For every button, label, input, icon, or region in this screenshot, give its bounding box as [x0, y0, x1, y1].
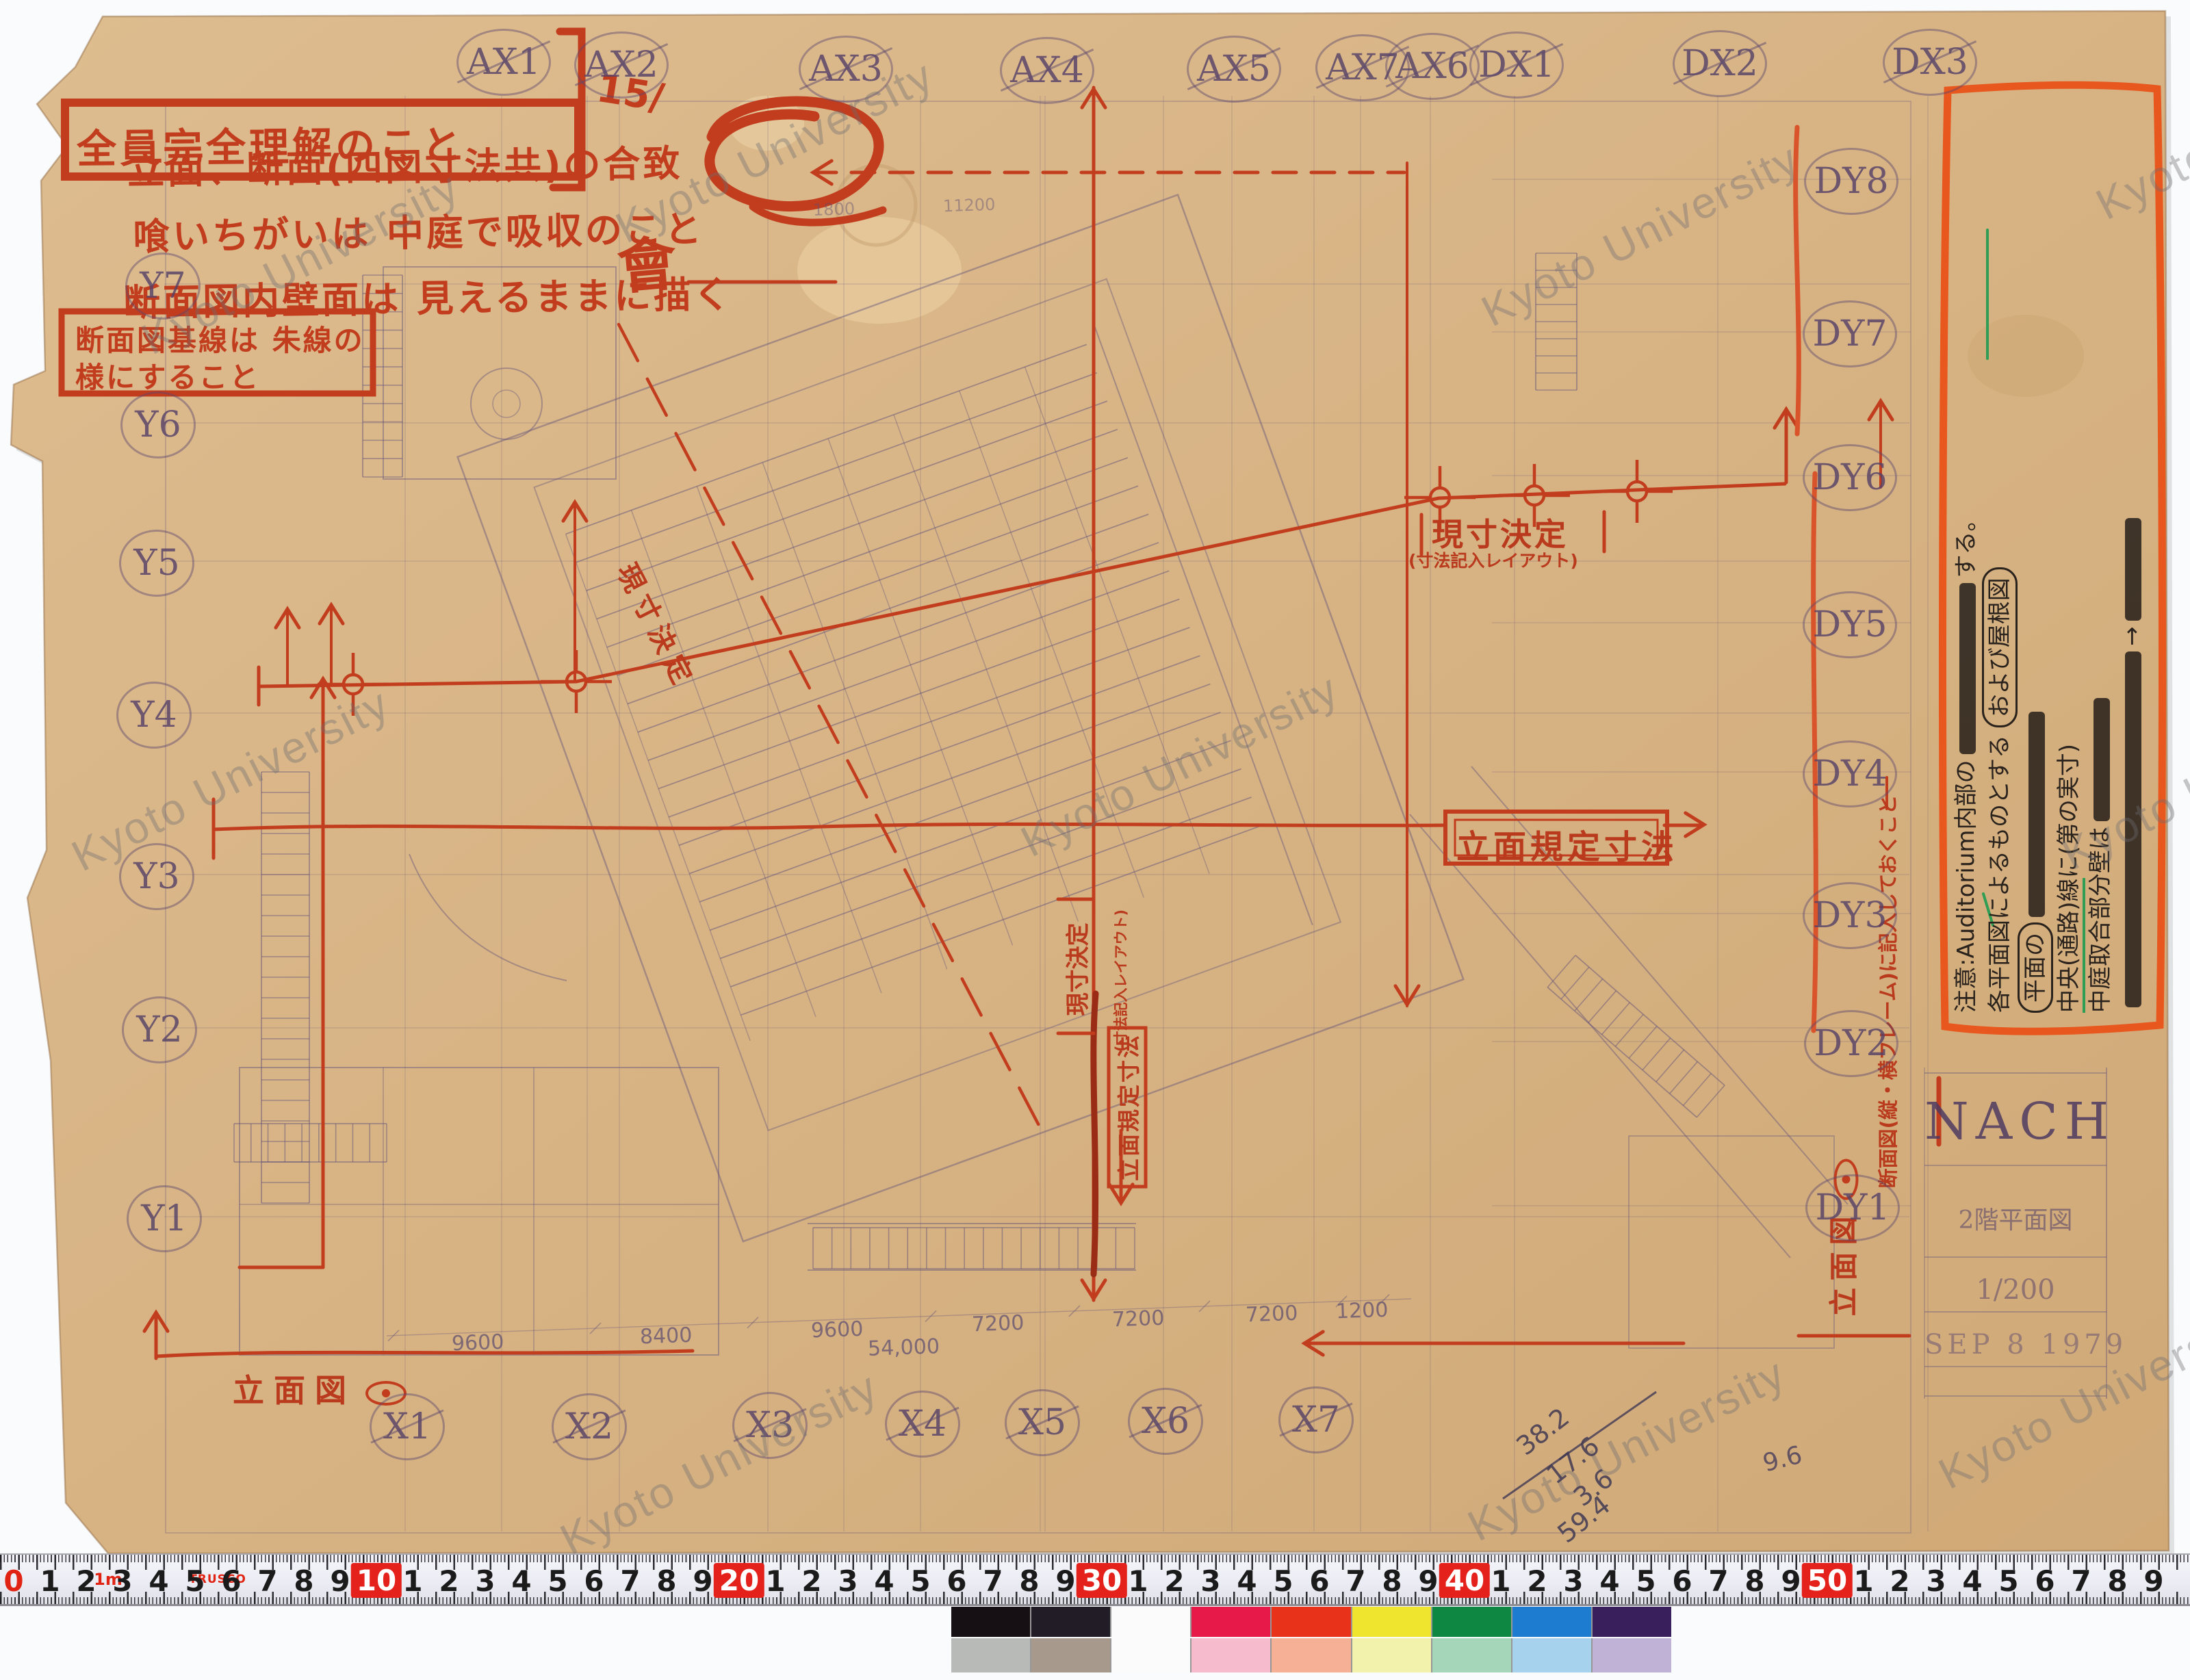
ruler-cm-mark: 7 — [983, 1564, 1003, 1598]
margin-note-circled-plan: 平面の — [2018, 922, 2053, 1013]
ruler-cm-mark: 8 — [294, 1564, 313, 1598]
grid-label-x5: X5 — [1005, 1389, 1080, 1456]
title-block-date: SEP 8 1979 — [1924, 1329, 2107, 1360]
scanned-drawing-page: 全員完全理解のこと 15/ 會 立面、断面(四図寸法共)の合致 喰いちがいは 中… — [0, 0, 2190, 1680]
grid-label-text: Y4 — [131, 695, 177, 736]
color-patch-pastel — [1031, 1638, 1110, 1672]
boxed-note2-line2: 様にすること — [75, 354, 260, 396]
ruler-cm-mark: 1 — [40, 1564, 60, 1598]
grid-label-ax7: AX7 — [1315, 34, 1410, 101]
grid-label-x4: X4 — [885, 1391, 960, 1458]
ruler-cm-mark: 4 — [149, 1564, 168, 1598]
ruler-cm-mark: 2 — [801, 1564, 821, 1598]
ruler-cm-mark: 5 — [1273, 1564, 1293, 1598]
ruler-cm-mark: 2 — [1890, 1564, 1909, 1598]
ruler-cm-mark: 4 — [874, 1564, 894, 1598]
ruler-cm-mark: 8 — [2107, 1564, 2127, 1598]
ruler-cm-mark: 5 — [1998, 1564, 2018, 1598]
grid-label-dy7: DY7 — [1803, 300, 1897, 367]
ruler-cm-mark: 0 — [3, 1564, 23, 1598]
measuring-tape-ruler: 1m TRUSCO 012345678910123456789201234567… — [0, 1553, 2190, 1606]
ruler-cm-mark: 7 — [1345, 1564, 1365, 1598]
color-patch-pastel — [1272, 1638, 1350, 1672]
dimension-value: 9600 — [810, 1317, 864, 1343]
color-patch-saturated — [1432, 1607, 1511, 1637]
grid-label-x1: X1 — [370, 1393, 445, 1460]
grid-label-dy4: DY4 — [1803, 740, 1897, 807]
grid-label-text: Y2 — [136, 1009, 182, 1050]
ruler-cm-mark: 3 — [1926, 1564, 1946, 1598]
dimension-value: 9600 — [451, 1330, 504, 1356]
grid-label-dy1: DY1 — [1805, 1174, 1900, 1241]
grid-label-text: Y5 — [133, 543, 179, 584]
grid-label-y6: Y6 — [120, 391, 196, 458]
ruler-cm-mark: 7 — [620, 1564, 640, 1598]
ruler-cm-mark: 9 — [330, 1564, 350, 1598]
color-patch-saturated — [1512, 1607, 1591, 1637]
color-calibration-bar — [951, 1607, 1671, 1672]
color-patch-saturated — [1191, 1607, 1270, 1637]
ruler-cm-mark: 5 — [910, 1564, 930, 1598]
margin-annotation-block: 注意:Auditorium内部のする。 各平面図によるものとする および屋根図 … — [1950, 96, 2156, 1013]
elevation-view-text: 立面図 — [233, 1372, 356, 1409]
section-frame-note-vertical: 断面図(縦・横フレーム)に記入しておくこと — [1872, 773, 1901, 1211]
title-block-stamp: NACH — [1924, 1092, 2107, 1151]
ruler-cm-mark: 3 — [1563, 1564, 1583, 1598]
stamp-elevation-rule-horizontal: 立面規定寸法 — [1456, 820, 1678, 868]
scribble-redaction — [2094, 698, 2110, 821]
margin-note-row: 注意:Auditorium内部のする。 — [1950, 96, 1982, 1013]
ruler-cm-mark: 3 — [1200, 1564, 1220, 1598]
dimension-value: 7200 — [971, 1311, 1025, 1337]
ruler-cm-mark: 5 — [1636, 1564, 1656, 1598]
ruler-cm-mark: 8 — [1019, 1564, 1039, 1598]
grid-label-dx2: DX2 — [1673, 30, 1767, 97]
ruler-cm-mark: 1 — [765, 1564, 785, 1598]
color-patch-pastel — [1352, 1638, 1431, 1672]
grid-label-dx3: DX3 — [1883, 29, 1977, 96]
grid-label-x6: X6 — [1128, 1388, 1203, 1455]
ruler-ten-mark: 30 — [1077, 1563, 1127, 1598]
grid-label-text: DY7 — [1812, 313, 1887, 354]
margin-note-row: 平面の — [2018, 96, 2053, 1013]
grid-label-text: DY4 — [1812, 753, 1887, 794]
margin-note-row: 中庭取合部分壁は — [2085, 96, 2116, 1013]
ruler-cm-mark: 6 — [1672, 1564, 1692, 1598]
grid-label-y2: Y2 — [122, 996, 197, 1063]
grid-label-text: Y1 — [141, 1198, 187, 1239]
grid-label-dy6: DY6 — [1803, 444, 1897, 511]
margin-note-circled-roofplan: および屋根図 — [1982, 567, 2018, 727]
margin-note-suffix: する。 — [1953, 508, 1980, 578]
stamp-fullsize-vertical: 現寸決定 — [1059, 905, 1093, 1035]
color-patch-saturated — [1111, 1607, 1190, 1637]
grid-label-dy2: DY2 — [1804, 1010, 1898, 1077]
ruler-cm-mark: 5 — [547, 1564, 567, 1598]
grid-label-text: DY5 — [1812, 604, 1887, 645]
dimension-upper-b: 11200 — [943, 195, 996, 216]
color-patch-saturated — [1352, 1607, 1431, 1637]
color-patch-saturated — [951, 1607, 1030, 1637]
grid-label-text: DY2 — [1814, 1023, 1888, 1064]
ruler-cm-mark: 9 — [693, 1564, 712, 1598]
title-block-title: 2階平面図 — [1924, 1200, 2107, 1236]
ruler-cm-mark: 4 — [511, 1564, 531, 1598]
grid-label-dy8: DY8 — [1804, 148, 1898, 215]
arrow-right-icon: → — [2118, 627, 2146, 647]
ruler-cm-mark: 6 — [1309, 1564, 1329, 1598]
margin-note-caution: 注意:Auditorium内部の — [1953, 760, 1980, 1013]
ruler-cm-mark: 4 — [1237, 1564, 1257, 1598]
ruler-cm-mark: 8 — [1382, 1564, 1402, 1598]
dimension-total: 54,000 — [867, 1334, 940, 1361]
ruler-cm-mark: 6 — [946, 1564, 966, 1598]
grid-label-x2: X2 — [552, 1393, 627, 1460]
grid-label-ax2: AX2 — [574, 31, 669, 99]
ruler-ten-mark: 10 — [351, 1563, 402, 1598]
grid-label-y5: Y5 — [119, 530, 194, 597]
ruler-cm-mark: 3 — [475, 1564, 495, 1598]
ruler-cm-mark: 3 — [112, 1564, 132, 1598]
grid-label-ax1: AX1 — [456, 29, 551, 96]
ruler-cm-mark: 9 — [1781, 1564, 1801, 1598]
ruler-ten-mark: 50 — [1802, 1563, 1853, 1598]
ruler-cm-mark: 6 — [584, 1564, 604, 1598]
ruler-ten-mark: 20 — [714, 1563, 764, 1598]
ruler-cm-mark: 7 — [2071, 1564, 2091, 1598]
ruler-cm-mark: 8 — [1744, 1564, 1764, 1598]
margin-note-centerline: 中央(通路)線 — [2055, 878, 2085, 1013]
grid-label-dx1: DX1 — [1469, 31, 1564, 99]
color-patch-pastel — [1593, 1638, 1671, 1672]
grid-label-ax4: AX4 — [1000, 37, 1094, 104]
grid-label-dy5: DY5 — [1803, 591, 1897, 658]
ruler-cm-mark: 7 — [1708, 1564, 1728, 1598]
ruler-cm-mark: 5 — [185, 1564, 205, 1598]
title-block-scale: 1/200 — [1924, 1274, 2107, 1306]
grid-label-x7: X7 — [1278, 1386, 1354, 1453]
stamp-fullsize-vertical-sub: (寸法記入レイアウト) — [1110, 902, 1131, 1059]
dimension-value: 7200 — [1245, 1302, 1298, 1328]
margin-note-byplan: 各平面図によるものとする — [1986, 735, 2013, 1013]
color-bar-row-pastel — [951, 1638, 1671, 1672]
color-bar-row-saturated — [951, 1607, 1671, 1637]
stamp-fullsize-horizontal-sub: (寸法記入レイアウト) — [1408, 547, 1578, 572]
ruler-cm-mark: 9 — [1418, 1564, 1438, 1598]
ruler-cm-mark: 2 — [1527, 1564, 1547, 1598]
dimension-upper-a: 1800 — [813, 199, 855, 220]
ruler-cm-mark: 4 — [1962, 1564, 1982, 1598]
color-patch-pastel — [1432, 1638, 1511, 1672]
grid-label-y1: Y1 — [127, 1185, 202, 1252]
scribble-redaction — [1959, 583, 1976, 754]
ruler-cm-mark: 2 — [76, 1564, 96, 1598]
scribble-redaction — [2028, 712, 2045, 917]
grid-label-text: Y6 — [135, 404, 181, 445]
grid-label-text: DY8 — [1814, 161, 1888, 202]
ruler-cm-mark: 9 — [2143, 1564, 2163, 1598]
paper-stain — [797, 217, 962, 324]
ruler-cm-mark: 2 — [439, 1564, 459, 1598]
color-patch-saturated — [1593, 1607, 1671, 1637]
color-patch-pastel — [1512, 1638, 1591, 1672]
ruler-cm-mark: 6 — [221, 1564, 241, 1598]
grid-label-text: DY1 — [1815, 1187, 1890, 1228]
dimension-value: 1200 — [1335, 1298, 1389, 1324]
grid-label-text: DY6 — [1812, 457, 1887, 498]
ruler-cm-mark: 1 — [1853, 1564, 1873, 1598]
dimension-value: 8400 — [639, 1323, 693, 1349]
margin-note-row: 各平面図によるものとする および屋根図 — [1982, 96, 2018, 1013]
ruler-cm-mark: 6 — [2035, 1564, 2054, 1598]
color-patch-saturated — [1272, 1607, 1350, 1637]
grid-label-text: Y3 — [133, 856, 179, 897]
scribble-redaction — [2125, 519, 2141, 621]
ruler-cm-mark: 2 — [1164, 1564, 1184, 1598]
color-patch-saturated — [1031, 1607, 1110, 1637]
ruler-cm-mark: 8 — [656, 1564, 676, 1598]
color-patch-pastel — [951, 1638, 1030, 1672]
ruler-cm-mark: 4 — [1599, 1564, 1619, 1598]
dimension-value: 7200 — [1111, 1306, 1165, 1332]
grid-label-y4: Y4 — [116, 682, 192, 749]
grid-label-dy3: DY3 — [1803, 882, 1897, 949]
ruler-cm-mark: 7 — [257, 1564, 277, 1598]
ruler-cm-mark: 1 — [1128, 1564, 1148, 1598]
ruler-cm-mark: 9 — [1055, 1564, 1075, 1598]
grid-label-text: DY3 — [1812, 895, 1887, 936]
grid-label-ax5: AX5 — [1187, 36, 1281, 103]
ruler-cm-mark: 1 — [1491, 1564, 1510, 1598]
ruler-cm-mark: 3 — [838, 1564, 858, 1598]
margin-note-row: → — [2116, 96, 2148, 1013]
color-patch-pastel — [1191, 1638, 1270, 1672]
ruler-cm-mark: 1 — [402, 1564, 422, 1598]
ruler-ten-mark: 40 — [1439, 1563, 1490, 1598]
color-patch-pastel — [1111, 1638, 1190, 1672]
